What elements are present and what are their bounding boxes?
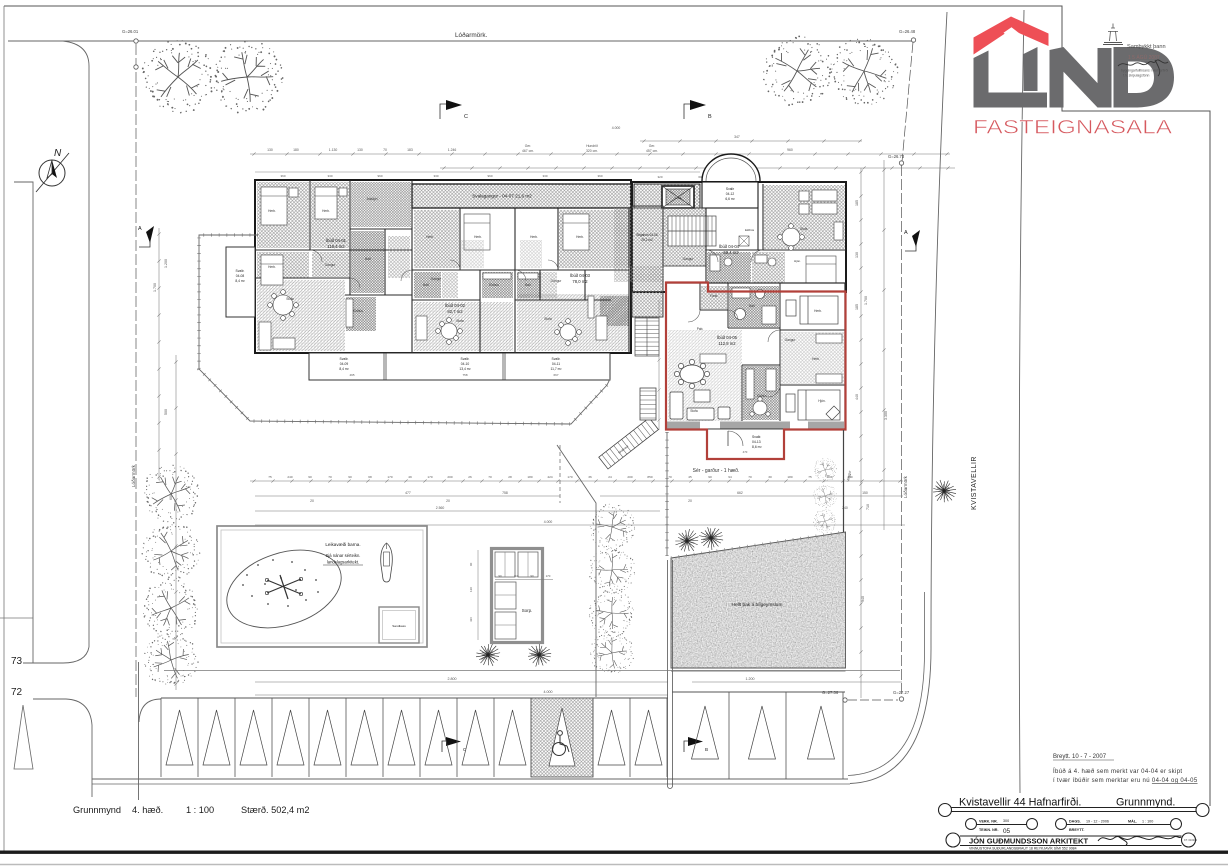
svg-text:360: 360 — [597, 174, 602, 178]
svg-text:457 cm.: 457 cm. — [646, 149, 658, 153]
svg-text:DAGS.: DAGS. — [1069, 820, 1081, 824]
svg-text:04-10: 04-10 — [461, 362, 470, 366]
svg-text:Gangur: Gangur — [431, 277, 443, 281]
svg-text:Sjá nánar sérteikn.: Sjá nánar sérteikn. — [326, 553, 361, 558]
svg-text:13,4 m²: 13,4 m² — [459, 367, 471, 371]
svg-text:G=26.48: G=26.48 — [899, 29, 916, 34]
svg-text:75: 75 — [268, 475, 272, 479]
svg-text:758: 758 — [462, 373, 467, 377]
svg-text:G=27.36: G=27.36 — [822, 690, 839, 695]
svg-text:70: 70 — [748, 475, 752, 479]
svg-text:70: 70 — [668, 475, 672, 479]
svg-text:180: 180 — [787, 475, 792, 479]
svg-text:2.560: 2.560 — [436, 506, 445, 510]
svg-text:200: 200 — [627, 475, 632, 479]
svg-text:Grunnmynd.: Grunnmynd. — [1116, 797, 1175, 809]
svg-text:1.700: 1.700 — [153, 283, 157, 292]
svg-text:Íbúð 04-04: Íbúð 04-04 — [719, 244, 740, 249]
svg-text:8,4 m²: 8,4 m² — [339, 367, 349, 371]
svg-text:Sandkass: Sandkass — [392, 624, 406, 628]
svg-text:04-12: 04-12 — [726, 192, 735, 196]
svg-text:6,6 m²: 6,6 m² — [725, 197, 735, 201]
svg-text:Herb.: Herb. — [474, 235, 482, 239]
svg-text:960: 960 — [787, 148, 793, 152]
svg-text:Íbúð 04-01: Íbúð 04-01 — [326, 238, 347, 243]
svg-text:Herb.: Herb. — [268, 265, 276, 269]
svg-text:120: 120 — [469, 587, 473, 592]
svg-text:90: 90 — [308, 475, 312, 479]
svg-text:Eldhús: Eldhús — [353, 309, 363, 313]
svg-text:Eldhús: Eldhús — [489, 283, 499, 287]
svg-text:Stofa: Stofa — [456, 319, 464, 323]
svg-text:82,7 m2: 82,7 m2 — [447, 309, 463, 314]
svg-text:24: 24 — [608, 475, 612, 479]
svg-text:Svalir.: Svalir. — [461, 357, 470, 361]
svg-text:BREYTT.: BREYTT. — [1069, 828, 1084, 832]
svg-text:180: 180 — [527, 475, 532, 479]
svg-text:1.130: 1.130 — [329, 148, 338, 152]
svg-text:FASTEIGNASALA: FASTEIGNASALA — [973, 117, 1172, 139]
svg-text:A: A — [904, 230, 908, 236]
svg-text:45: 45 — [688, 475, 692, 479]
svg-text:2.800: 2.800 — [448, 677, 457, 681]
svg-text:940: 940 — [861, 596, 865, 602]
svg-text:Bað: Bað — [423, 282, 429, 287]
svg-text:Herb.: Herb. — [322, 209, 330, 213]
svg-text:N: N — [54, 148, 62, 159]
svg-text:185: 185 — [855, 200, 859, 206]
svg-text:758: 758 — [502, 491, 508, 495]
svg-text:1.246: 1.246 — [448, 148, 457, 152]
svg-text:Herb.: Herb. — [268, 209, 276, 213]
svg-text:90: 90 — [469, 562, 473, 566]
svg-text:Sér - garður - 1 hæð.: Sér - garður - 1 hæð. — [693, 467, 740, 474]
svg-text:Lóðarmörk.: Lóðarmörk. — [455, 31, 488, 39]
svg-text:B: B — [705, 747, 708, 752]
svg-text:B: B — [708, 114, 712, 120]
svg-text:Leikavæði barna.: Leikavæði barna. — [325, 541, 360, 547]
svg-text:Gangur: Gangur — [785, 338, 797, 342]
svg-text:600: 600 — [169, 494, 173, 500]
svg-text:Kvistavellir 44 Hafnarfirði: Kvistavellir 44 Hafnarfirði. — [959, 797, 1081, 809]
svg-text:Hundrið: Hundrið — [586, 143, 598, 148]
svg-text:500: 500 — [164, 409, 168, 415]
svg-text:330: 330 — [542, 174, 547, 178]
svg-text:Stofa: Stofa — [690, 409, 698, 413]
svg-text:467 cm.: 467 cm. — [522, 149, 534, 153]
svg-text:TEIKN. NR.: TEIKN. NR. — [979, 828, 998, 832]
svg-text:Herb.: Herb. — [576, 235, 584, 239]
svg-text:170: 170 — [427, 475, 432, 479]
svg-text:4.000: 4.000 — [612, 126, 621, 130]
svg-text:110: 110 — [514, 574, 519, 578]
svg-text:Stofa: Stofa — [544, 317, 552, 321]
svg-text:8,4 m²: 8,4 m² — [235, 279, 245, 283]
svg-text:Gangur: Gangur — [683, 257, 695, 261]
svg-text:26: 26 — [468, 475, 472, 479]
svg-text:Herb.: Herb. — [426, 235, 434, 239]
svg-text:Íbúð á 4. hæð sem merkt: Íbúð á 4. hæð sem merkt var 04-04 er ski… — [1053, 768, 1182, 775]
svg-text:320 cm.: 320 cm. — [586, 149, 598, 153]
svg-text:28: 28 — [508, 475, 512, 479]
svg-text:850: 850 — [647, 475, 652, 479]
svg-text:662: 662 — [737, 491, 743, 495]
svg-text:170: 170 — [546, 574, 551, 578]
svg-text:1.200: 1.200 — [164, 259, 168, 268]
svg-text:200: 200 — [827, 475, 832, 479]
svg-text:960: 960 — [377, 174, 382, 178]
svg-text:04-08: 04-08 — [236, 274, 245, 278]
svg-text:Ger.: Ger. — [525, 144, 532, 148]
svg-text:Herb.: Herb. — [530, 235, 538, 239]
svg-text:C: C — [464, 114, 468, 120]
svg-text:180: 180 — [293, 148, 299, 152]
svg-text:Pab.: Pab. — [697, 327, 704, 331]
svg-text:68,4 m2: 68,4 m2 — [723, 250, 739, 255]
svg-text:70: 70 — [328, 475, 332, 479]
svg-text:Eldhús: Eldhús — [757, 394, 767, 398]
svg-text:240: 240 — [287, 475, 292, 479]
svg-text:G=27.27: G=27.27 — [893, 690, 910, 695]
svg-text:710: 710 — [866, 504, 870, 510]
svg-text:70: 70 — [488, 475, 492, 479]
svg-text:94: 94 — [728, 475, 732, 479]
svg-text:1.200: 1.200 — [746, 677, 755, 681]
svg-text:Hjón.: Hjón. — [794, 259, 801, 263]
svg-text:Breytt. 10 - 7 - 2007: Breytt. 10 - 7 - 2007 — [1053, 754, 1107, 760]
svg-text:Svalir.: Svalir. — [552, 357, 561, 361]
svg-text:75: 75 — [808, 475, 812, 479]
svg-text:G=26.73: G=26.73 — [888, 154, 905, 159]
svg-text:36: 36 — [588, 475, 592, 479]
svg-text:150: 150 — [862, 491, 868, 495]
svg-text:330: 330 — [327, 174, 332, 178]
svg-text:Hellt þak á bílgeymslum: Hellt þak á bílgeymslum — [732, 602, 783, 608]
svg-text:90: 90 — [348, 475, 352, 479]
svg-text:Íbúð 04-05: Íbúð 04-05 — [717, 335, 738, 340]
svg-text:78,0 m2: 78,0 m2 — [572, 279, 588, 284]
svg-text:72: 72 — [11, 687, 23, 698]
svg-text:04-11: 04-11 — [552, 362, 560, 366]
svg-text:Gangur: Gangur — [325, 263, 337, 267]
svg-text:130: 130 — [855, 252, 859, 258]
svg-text:05: 05 — [1003, 828, 1011, 835]
svg-text:73: 73 — [11, 656, 23, 667]
svg-text:KT. 010203: KT. 010203 — [1184, 838, 1198, 842]
svg-text:112,8 m2: 112,8 m2 — [718, 341, 736, 346]
svg-text:Forst.: Forst. — [710, 294, 718, 298]
svg-text:Ger.: Ger. — [649, 144, 656, 148]
svg-text:G=26.01: G=26.01 — [122, 29, 139, 34]
svg-text:347: 347 — [734, 135, 740, 139]
svg-text:30: 30 — [768, 475, 772, 479]
svg-text:byggingarfulltrúans í Hafnarfi: byggingarfulltrúans í Hafnarfirði — [1121, 68, 1168, 73]
svg-text:440: 440 — [855, 394, 859, 400]
svg-text:90: 90 — [498, 574, 502, 578]
svg-text:185: 185 — [855, 304, 859, 310]
svg-text:119,4 m2: 119,4 m2 — [327, 244, 345, 249]
svg-text:A: A — [138, 226, 142, 232]
svg-text:Lóðarmörk: Lóðarmörk — [130, 464, 136, 487]
svg-text:495: 495 — [349, 373, 354, 377]
svg-text:320: 320 — [657, 175, 662, 179]
svg-text:Sorp.: Sorp. — [522, 608, 533, 613]
svg-text:Íbúð 04-02: Íbúð 04-02 — [445, 303, 466, 308]
svg-text:960: 960 — [487, 174, 492, 178]
svg-text:49: 49 — [408, 475, 412, 479]
svg-text:Svalir: Svalir — [726, 187, 735, 191]
svg-text:Stigahús 04-06: Stigahús 04-06 — [636, 233, 658, 237]
svg-text:Grunnmynd: Grunnmynd — [73, 805, 121, 815]
svg-text:JÓN GUÐMUNDSSON ARKITEKT: JÓN GUÐMUNDSSON ARKITEKT — [969, 837, 1088, 846]
svg-text:Anddyri: Anddyri — [367, 197, 378, 201]
svg-text:470: 470 — [743, 450, 748, 454]
svg-text:68: 68 — [368, 475, 372, 479]
svg-text:04-13: 04-13 — [752, 440, 761, 444]
svg-text:04-09: 04-09 — [340, 362, 349, 366]
svg-text:330: 330 — [433, 174, 438, 178]
svg-text:8,6 m²: 8,6 m² — [752, 445, 762, 449]
svg-text:Stofa: Stofa — [286, 297, 294, 301]
svg-text:Samþykkt þann: Samþykkt þann — [1127, 44, 1166, 50]
svg-text:20: 20 — [446, 499, 450, 503]
svg-text:667: 667 — [553, 373, 558, 377]
svg-text:19 - 12 - 2006: 19 - 12 - 2006 — [1086, 820, 1109, 824]
svg-text:Svalir.: Svalir. — [752, 435, 761, 439]
svg-text:Bað: Bað — [365, 256, 371, 261]
svg-text:424: 424 — [547, 475, 552, 479]
svg-text:426: 426 — [469, 617, 473, 622]
svg-text:11,7 m²: 11,7 m² — [551, 367, 563, 371]
svg-text:130: 130 — [267, 148, 273, 152]
svg-text:Stofa: Stofa — [800, 227, 808, 231]
svg-text:477: 477 — [405, 491, 411, 495]
svg-text:200: 200 — [447, 475, 452, 479]
svg-text:Svalir.: Svalir. — [340, 357, 349, 361]
svg-text:90: 90 — [530, 574, 534, 578]
svg-text:20: 20 — [310, 499, 314, 503]
svg-text:Lóðarmörk: Lóðarmörk — [902, 475, 908, 498]
svg-text:Bað: Bað — [525, 282, 531, 287]
svg-text:4.000: 4.000 — [544, 520, 553, 524]
svg-text:VINNUSTOFA SUÐURLANDSBRAU: VINNUSTOFA SUÐURLANDSBRAUT 18 REYKJAVÍK … — [969, 847, 1077, 851]
svg-text:VERK. NR.: VERK. NR. — [979, 820, 998, 824]
svg-text:Svalagangur - 04-07 21,6: Svalagangur - 04-07 21,6 m2 — [472, 194, 532, 199]
svg-text:Eldhús: Eldhús — [745, 228, 755, 232]
svg-text:29,2 m2: 29,2 m2 — [641, 238, 653, 242]
svg-text:20: 20 — [688, 499, 692, 503]
svg-text:1 : 100: 1 : 100 — [1142, 820, 1153, 824]
svg-text:Herb.: Herb. — [814, 309, 822, 313]
svg-text:landslagsarkitekt.: landslagsarkitekt. — [327, 560, 359, 565]
svg-text:170: 170 — [567, 475, 572, 479]
svg-text:Herb.: Herb. — [812, 357, 820, 361]
svg-text:Svalir.: Svalir. — [236, 269, 245, 273]
svg-text:4. hæð.: 4. hæð. — [132, 805, 163, 815]
svg-text:300: 300 — [1003, 819, 1009, 823]
svg-text:130: 130 — [357, 148, 363, 152]
svg-text:1.700: 1.700 — [864, 296, 868, 305]
svg-text:1 : 100: 1 : 100 — [186, 805, 214, 815]
svg-text:Bað: Bað — [749, 303, 755, 308]
svg-text:f.h. skipulagsfónn: f.h. skipulagsfónn — [1123, 74, 1150, 78]
svg-text:Hjón.: Hjón. — [818, 399, 826, 403]
svg-text:3.300: 3.300 — [884, 411, 888, 420]
svg-text:MÁL.: MÁL. — [1128, 819, 1137, 824]
svg-text:183: 183 — [407, 148, 413, 152]
svg-text:KVISTAVELLIR: KVISTAVELLIR — [971, 456, 978, 510]
svg-text:Íbúð 04-03: Íbúð 04-03 — [570, 273, 591, 278]
svg-text:í tvær íbúðir sem merktar: í tvær íbúðir sem merktar eru nú 04-04 o… — [1053, 777, 1198, 784]
svg-text:360: 360 — [280, 174, 285, 178]
svg-text:Stærð. 502,4 m2: Stærð. 502,4 m2 — [241, 805, 309, 815]
svg-text:4.000: 4.000 — [544, 690, 553, 694]
svg-text:90: 90 — [708, 475, 712, 479]
svg-text:Lofta: Lofta — [675, 196, 682, 200]
svg-text:170: 170 — [387, 475, 392, 479]
svg-text:70: 70 — [383, 148, 387, 152]
